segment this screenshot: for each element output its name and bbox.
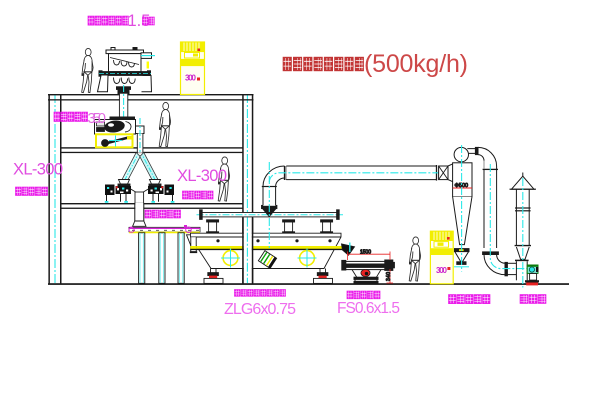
svg-text:300: 300 — [436, 266, 448, 275]
svg-text:(500kg/h): (500kg/h) — [364, 50, 468, 78]
svg-text:XL-300: XL-300 — [177, 167, 227, 185]
svg-text:340: 340 — [386, 272, 392, 281]
svg-text:FS0.6x1.5: FS0.6x1.5 — [337, 300, 400, 317]
svg-text:XL-300: XL-300 — [13, 161, 63, 179]
svg-text:1500: 1500 — [360, 249, 371, 255]
svg-text:350: 350 — [88, 111, 107, 127]
svg-text:300: 300 — [185, 74, 197, 83]
svg-text:ZLG6x0.75: ZLG6x0.75 — [224, 301, 296, 318]
